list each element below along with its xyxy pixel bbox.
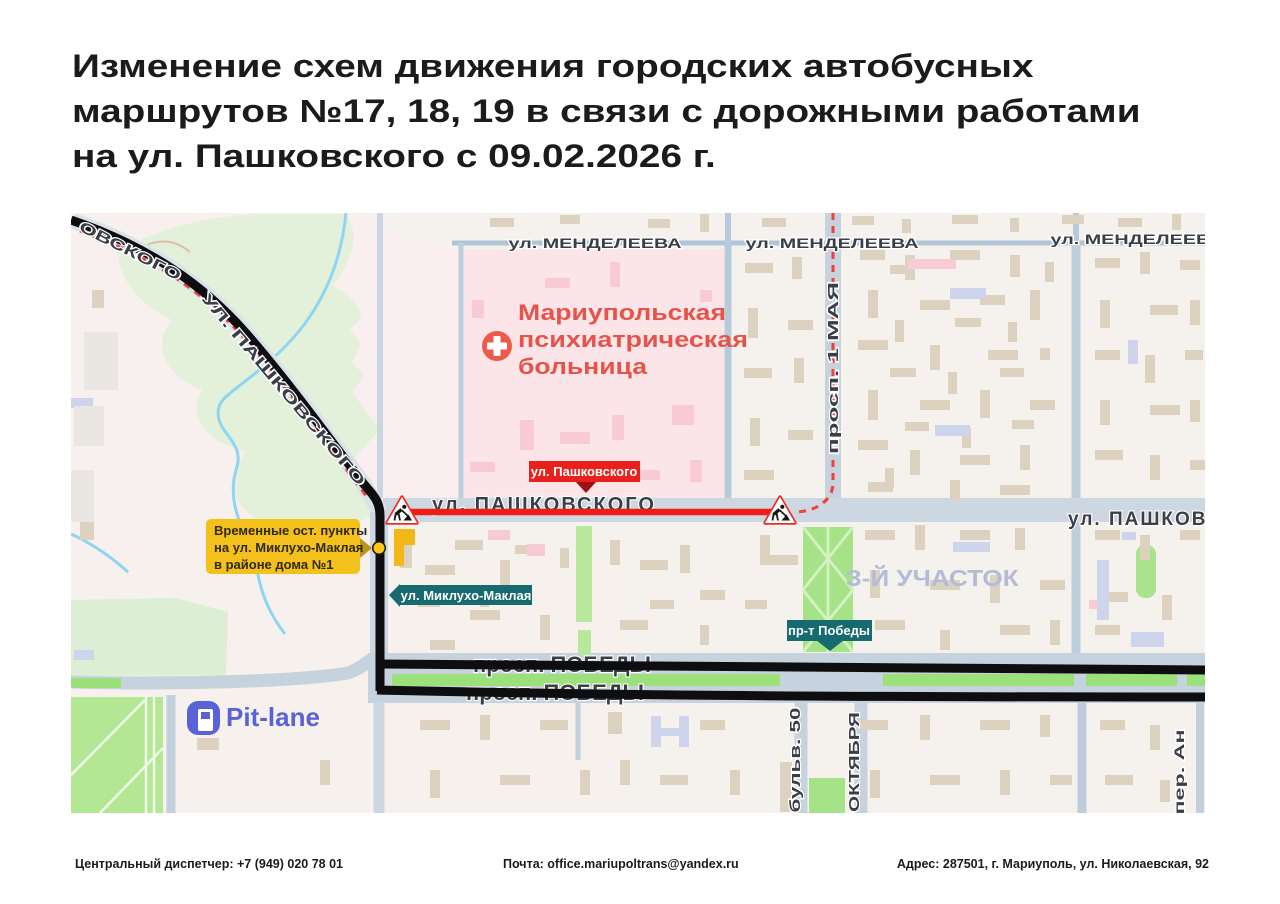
svg-text:ул. МЕНДЕЛЕЕВА: ул. МЕНДЕЛЕЕВА [746,235,919,251]
svg-text:З-Й УЧАСТОК: З-Й УЧАСТОК [846,564,1020,591]
svg-text:Временные ост. пункты: Временные ост. пункты [214,523,367,538]
svg-text:психиатрическая: психиатрическая [518,327,748,352]
svg-text:ул. ПАШКОВСК: ул. ПАШКОВСК [1068,509,1236,530]
svg-text:пр-т Победы: пр-т Победы [788,623,870,638]
svg-text:просп. 1 МАЯ: просп. 1 МАЯ [825,282,842,454]
svg-text:на ул. Миклухо-Маклая: на ул. Миклухо-Маклая [214,540,363,555]
svg-text:больница: больница [518,354,648,379]
svg-text:Pit-lane: Pit-lane [226,702,320,732]
svg-text:ул. МЕНДЕЛЕЕВА: ул. МЕНДЕЛЕЕВА [509,235,682,251]
svg-text:ул. Пашковского: ул. Пашковского [531,464,638,479]
svg-text:ОКТЯБРЯ: ОКТЯБРЯ [846,712,863,812]
svg-text:ул. МЕНДЕЛЕЕВА: ул. МЕНДЕЛЕЕВА [1051,231,1224,247]
svg-text:бульв. 50: бульв. 50 [787,708,804,813]
svg-text:ул. Миклухо-Маклая: ул. Миклухо-Маклая [401,588,532,603]
svg-text:в районе дома №1: в районе дома №1 [214,557,333,572]
svg-text:Мариупольская: Мариупольская [518,300,726,325]
svg-text:пер. Ан: пер. Ан [1171,730,1187,815]
